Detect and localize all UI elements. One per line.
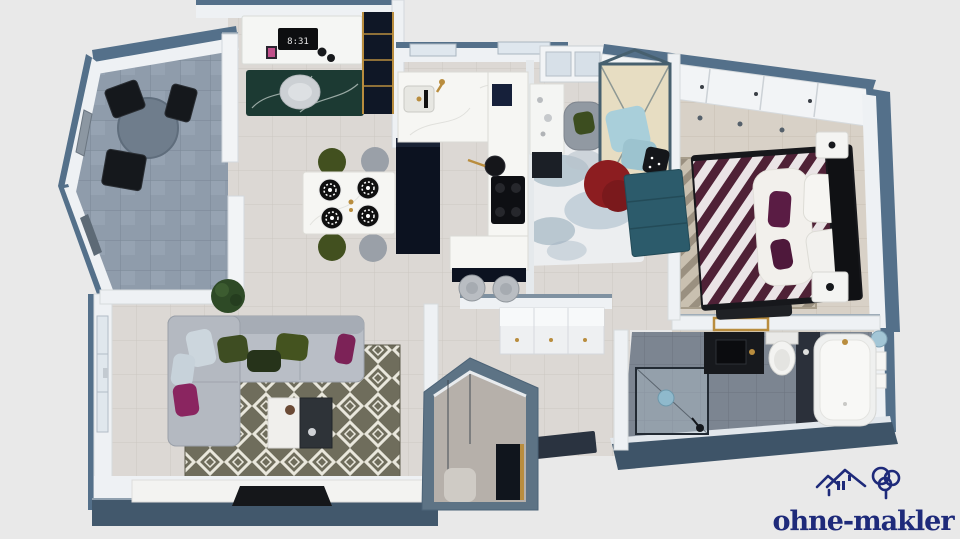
pan [485, 156, 505, 176]
teal-sideboard [624, 169, 690, 257]
bathtub [814, 334, 876, 426]
dark-green-cushion [247, 350, 281, 372]
watermark-logo: ohne-makler [768, 465, 958, 535]
house-and-tree-logo-icon [815, 465, 911, 503]
magenta-cushion [172, 382, 200, 417]
dining-chair-green [318, 233, 346, 261]
entrance [422, 358, 538, 510]
shower-drain [658, 390, 674, 406]
desk-clock-time: 8:31 [287, 37, 309, 47]
headphones [318, 48, 327, 57]
balcony-chair [101, 149, 147, 191]
plum-pillow [767, 191, 791, 228]
apartment-3d-plan: 8:31 [0, 0, 960, 539]
tv [232, 486, 332, 506]
floor-plan-render: 8:31 [0, 0, 960, 539]
kitchen-window [410, 44, 456, 56]
shoe-cabinet [500, 308, 604, 354]
counter-bottom [450, 236, 528, 270]
walk-in-shower [636, 368, 708, 434]
navy-peninsula [396, 138, 440, 254]
knife-block [492, 84, 512, 106]
dining-chair-grey [361, 147, 389, 175]
toilet-brush [803, 349, 809, 355]
entry-mat [444, 468, 476, 502]
nook-skylight [540, 46, 606, 82]
coffee-table [268, 398, 332, 448]
hob [491, 176, 525, 224]
watermark-text: ohne-makler [768, 508, 958, 535]
navy-shelf [363, 12, 393, 114]
dining-chair-grey [359, 234, 387, 262]
front-door [496, 444, 522, 500]
living-window [97, 316, 108, 432]
green-cushion [216, 334, 249, 364]
home-office: 8:31 [242, 12, 393, 116]
console-drawers [532, 152, 562, 178]
